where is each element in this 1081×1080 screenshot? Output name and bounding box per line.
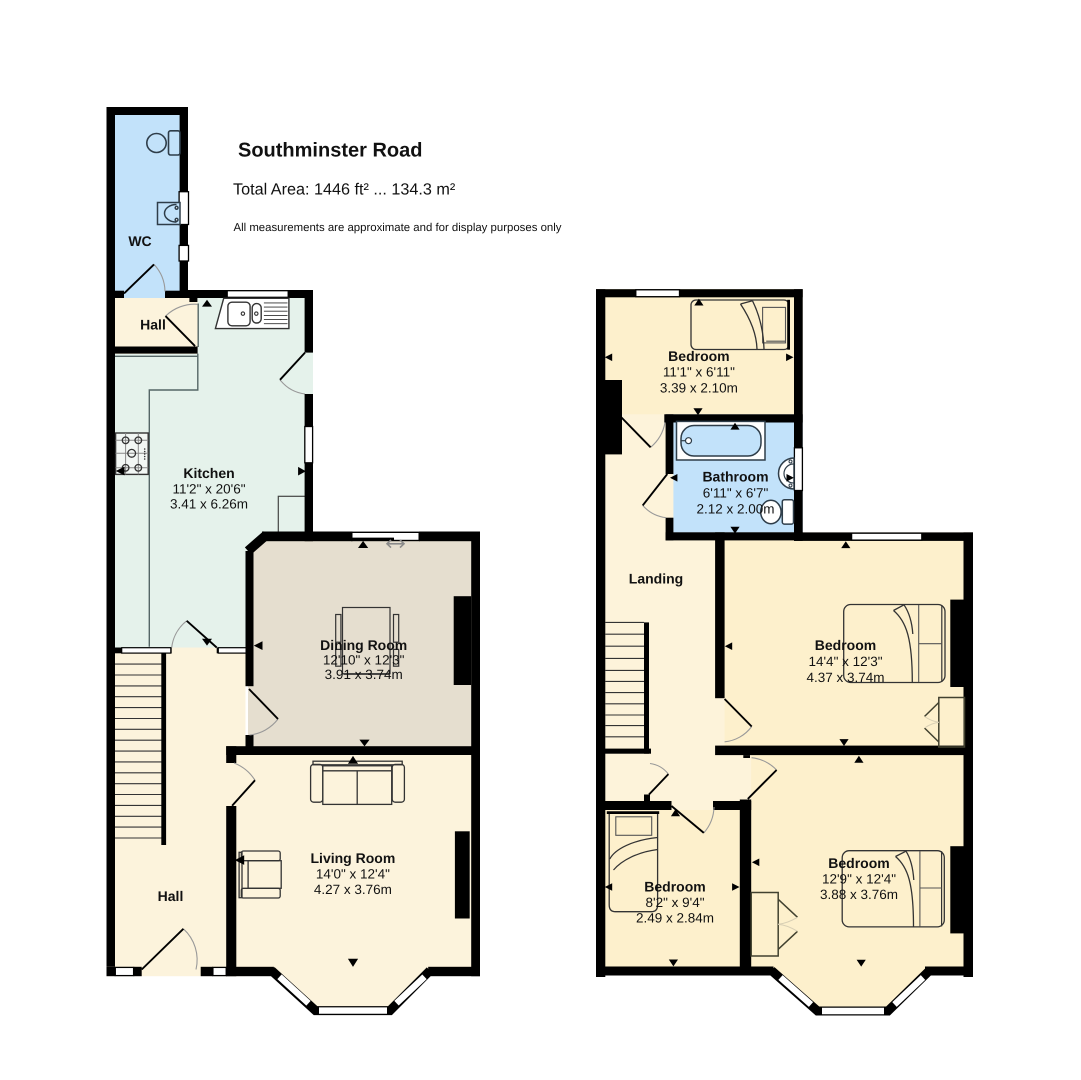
svg-text:11'1" x 6'11": 11'1" x 6'11" [663, 365, 735, 380]
svg-text:2.12 x 2.00m: 2.12 x 2.00m [696, 501, 774, 516]
svg-text:Total Area: 1446 ft² ... 134.3: Total Area: 1446 ft² ... 134.3 m² [233, 181, 456, 199]
svg-text:14'0" x 12'4": 14'0" x 12'4" [316, 867, 390, 882]
svg-text:Bathroom: Bathroom [702, 469, 768, 485]
svg-text:12'10" x 12'3": 12'10" x 12'3" [323, 653, 405, 668]
svg-text:8'2" x 9'4": 8'2" x 9'4" [645, 895, 704, 910]
svg-text:3.91 x 3.74m: 3.91 x 3.74m [325, 667, 403, 682]
svg-text:Bedroom: Bedroom [668, 348, 729, 364]
svg-text:6'11" x 6'7": 6'11" x 6'7" [703, 485, 769, 500]
svg-text:3.39 x 2.10m: 3.39 x 2.10m [660, 381, 738, 396]
svg-text:2.49 x 2.84m: 2.49 x 2.84m [636, 911, 714, 926]
svg-text:Bedroom: Bedroom [644, 879, 705, 895]
svg-text:Living Room: Living Room [311, 850, 396, 866]
svg-text:4.27 x 3.76m: 4.27 x 3.76m [314, 882, 392, 897]
svg-text:Bedroom: Bedroom [815, 637, 876, 653]
svg-text:4.37 x 3.74m: 4.37 x 3.74m [806, 670, 884, 685]
svg-text:Dining Room: Dining Room [320, 637, 407, 653]
svg-text:11'2" x 20'6": 11'2" x 20'6" [172, 482, 245, 497]
svg-text:Landing: Landing [629, 571, 683, 587]
svg-text:3.88 x 3.76m: 3.88 x 3.76m [820, 887, 898, 902]
svg-text:Hall: Hall [140, 316, 166, 332]
svg-text:WC: WC [128, 233, 151, 249]
svg-text:All measurements are approxima: All measurements are approximate and for… [234, 222, 562, 234]
svg-text:Bedroom: Bedroom [828, 855, 889, 871]
svg-text:Southminster Road: Southminster Road [238, 140, 422, 162]
svg-text:12'9" x 12'4": 12'9" x 12'4" [822, 872, 896, 887]
svg-text:14'4" x 12'3": 14'4" x 12'3" [808, 654, 882, 669]
svg-text:Hall: Hall [158, 888, 184, 904]
svg-text:3.41 x 6.26m: 3.41 x 6.26m [170, 497, 248, 512]
svg-text:Kitchen: Kitchen [183, 465, 234, 481]
